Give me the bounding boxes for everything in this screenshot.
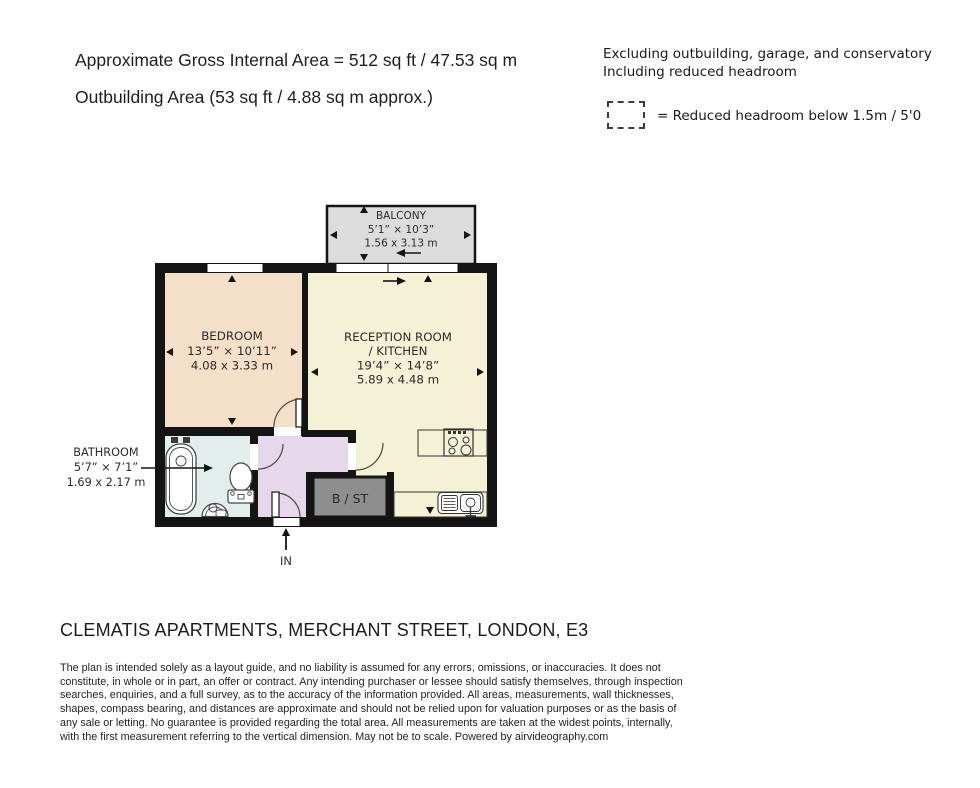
storage-cupboard: B / ST bbox=[313, 477, 387, 517]
disclaimer-line: constitute, in whole or in part, an offe… bbox=[60, 676, 700, 690]
bath-tap-icon bbox=[171, 437, 178, 443]
balcony-label: BALCONY bbox=[376, 210, 427, 222]
disclaimer-line: shapes, compass bearing, and distances a… bbox=[60, 703, 700, 717]
bedroom-label: BEDROOM bbox=[201, 329, 263, 343]
bathroom-dims-imperial: 5’7” × 7’1” bbox=[74, 461, 138, 474]
bedroom-door-leaf bbox=[296, 399, 302, 427]
reception-dims-metric: 5.89 x 4.48 m bbox=[357, 373, 439, 387]
balcony-dims-metric: 1.56 x 3.13 m bbox=[364, 238, 437, 250]
bst-label: B / ST bbox=[332, 491, 369, 506]
disclaimer: The plan is intended solely as a layout … bbox=[60, 662, 700, 744]
bath-tap-icon bbox=[183, 437, 190, 443]
balcony-dims-imperial: 5’1” × 10’3” bbox=[368, 224, 434, 236]
disclaimer-line: searches, enquiries, and a full survey, … bbox=[60, 689, 700, 703]
entrance-arrow-icon bbox=[282, 528, 290, 536]
bedroom-dims-imperial: 13’5” × 10’11” bbox=[187, 344, 277, 358]
disclaimer-line: with the first measurement referring to … bbox=[60, 731, 700, 745]
wall-bedroom-reception bbox=[302, 273, 308, 437]
entrance-label: IN bbox=[280, 554, 292, 568]
entrance-opening bbox=[273, 518, 300, 527]
property-title: CLEMATIS APARTMENTS, MERCHANT STREET, LO… bbox=[60, 620, 588, 641]
entrance-marker: IN bbox=[280, 528, 292, 568]
toilet-icon bbox=[230, 463, 252, 491]
floorplan-page: Approximate Gross Internal Area = 512 sq… bbox=[0, 0, 980, 788]
bathroom-label: BATHROOM bbox=[73, 446, 138, 459]
bedroom-window bbox=[207, 264, 263, 273]
bedroom-door-opening bbox=[274, 427, 301, 436]
wall-right bbox=[487, 263, 497, 527]
reception-door-opening bbox=[348, 443, 356, 470]
reception-label-line2: / KITCHEN bbox=[369, 344, 428, 358]
disclaimer-line: any sale or letting. No guarantee is pro… bbox=[60, 717, 700, 731]
bathroom-door-opening bbox=[250, 444, 258, 470]
wall-left bbox=[155, 263, 165, 527]
bedroom-dims-metric: 4.08 x 3.33 m bbox=[191, 359, 273, 373]
bathroom-dims-metric: 1.69 x 2.17 m bbox=[67, 476, 146, 489]
wall-hall-arm-top bbox=[302, 430, 356, 437]
balcony-sliding-door bbox=[388, 264, 458, 273]
reception-label-line1: RECEPTION ROOM bbox=[344, 330, 452, 344]
entrance-door-leaf bbox=[272, 492, 279, 517]
disclaimer-line: The plan is intended solely as a layout … bbox=[60, 662, 700, 676]
reception-dims-imperial: 19’4” × 14’8” bbox=[357, 359, 439, 373]
balcony-room: BALCONY 5’1” × 10’3” 1.56 x 3.13 m bbox=[327, 206, 475, 264]
basin-pedestal bbox=[216, 510, 226, 517]
reception-window bbox=[336, 264, 388, 273]
